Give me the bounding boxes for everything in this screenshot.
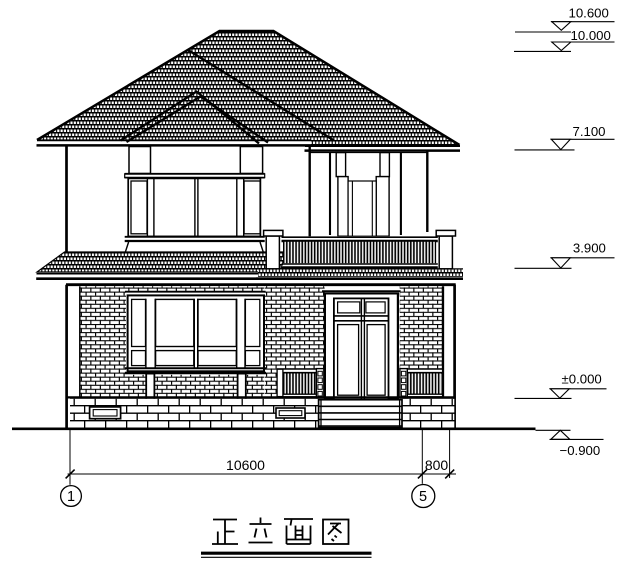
svg-text:±0.000: ±0.000 bbox=[562, 372, 602, 387]
svg-text:10.600: 10.600 bbox=[569, 6, 609, 21]
svg-text:−0.900: −0.900 bbox=[560, 443, 601, 458]
svg-text:10.000: 10.000 bbox=[571, 28, 611, 43]
svg-text:3.900: 3.900 bbox=[573, 241, 606, 256]
svg-text:5: 5 bbox=[419, 489, 427, 505]
svg-text:800: 800 bbox=[425, 457, 449, 473]
svg-text:7.100: 7.100 bbox=[573, 124, 606, 139]
svg-text:1: 1 bbox=[67, 489, 75, 505]
svg-text:10600: 10600 bbox=[226, 457, 265, 473]
